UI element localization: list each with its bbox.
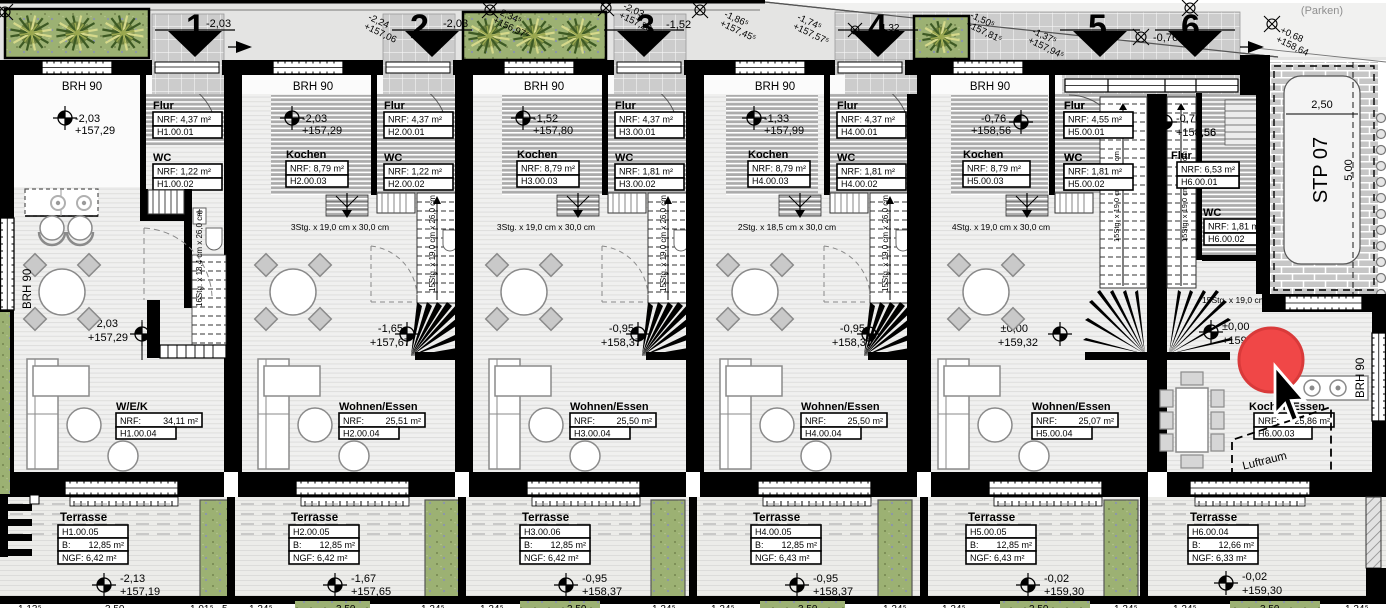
svg-text:15Stg. x 19,0 cm x 26,0 cm: 15Stg. x 19,0 cm x 26,0 cm (428, 195, 437, 292)
svg-text:1,01⁵: 1,01⁵ (190, 604, 214, 608)
svg-text:12,85 m²: 12,85 m² (319, 540, 355, 550)
svg-text:3,50: 3,50 (1029, 604, 1049, 608)
svg-text:(Parken): (Parken) (1301, 5, 1343, 17)
svg-text:NGF: 6,42 m²: NGF: 6,42 m² (524, 553, 579, 563)
svg-text:B:: B: (62, 540, 71, 550)
svg-text:H4.00.02: H4.00.02 (841, 179, 878, 189)
svg-text:NRF: 8,79 m²: NRF: 8,79 m² (752, 164, 806, 174)
svg-text:-1,67: -1,67 (351, 573, 376, 585)
svg-text:Terrasse: Terrasse (291, 512, 338, 524)
svg-text:Wohnen/Essen: Wohnen/Essen (801, 401, 880, 413)
svg-text:NRF: 1,81 m²: NRF: 1,81 m² (841, 167, 895, 177)
svg-text:Kochen: Kochen (517, 149, 558, 161)
svg-text:NRF: 8,79 m²: NRF: 8,79 m² (290, 164, 344, 174)
svg-text:1,24⁵: 1,24⁵ (1114, 604, 1138, 608)
svg-text:H6.00.01: H6.00.01 (1181, 177, 1218, 187)
svg-text:25,50 m²: 25,50 m² (847, 416, 883, 426)
svg-text:-0,76: -0,76 (1153, 32, 1178, 44)
svg-text:12,85 m²: 12,85 m² (88, 540, 124, 550)
svg-text:NRF: 1,22 m²: NRF: 1,22 m² (157, 167, 211, 177)
svg-text:NRF: 6,53 m²: NRF: 6,53 m² (1181, 165, 1235, 175)
svg-text:Flur: Flur (1064, 100, 1085, 112)
svg-text:NRF: 8,79 m²: NRF: 8,79 m² (967, 164, 1021, 174)
svg-text:Kochen: Kochen (748, 149, 789, 161)
svg-text:4Stg. x 19,0 cm x 30,0 cm: 4Stg. x 19,0 cm x 30,0 cm (952, 222, 1050, 232)
svg-text:B:: B: (524, 540, 533, 550)
svg-text:-2,03: -2,03 (206, 18, 231, 30)
svg-text:Kochen: Kochen (963, 149, 1004, 161)
svg-text:-0,95: -0,95 (813, 573, 838, 585)
svg-text:NRF: 4,37 m²: NRF: 4,37 m² (619, 115, 673, 125)
svg-text:+157,29: +157,29 (88, 332, 128, 344)
svg-text:NGF: 6,43 m²: NGF: 6,43 m² (970, 553, 1025, 563)
svg-text:12,85 m²: 12,85 m² (781, 540, 817, 550)
svg-text:-2,03: -2,03 (75, 113, 100, 125)
svg-text:Terrasse: Terrasse (522, 512, 569, 524)
svg-text:+158,37: +158,37 (832, 337, 872, 349)
svg-text:NRF: 4,37 m²: NRF: 4,37 m² (157, 115, 211, 125)
svg-text:Flur: Flur (837, 100, 858, 112)
svg-text:4,32: 4,32 (880, 23, 900, 34)
svg-text:12,85 m²: 12,85 m² (550, 540, 586, 550)
svg-text:1,24⁵: 1,24⁵ (421, 604, 445, 608)
svg-text:NGF: 6,42 m²: NGF: 6,42 m² (62, 553, 117, 563)
svg-text:-0,95: -0,95 (582, 573, 607, 585)
svg-text:-0,95: -0,95 (840, 323, 865, 335)
svg-text:B:: B: (970, 540, 979, 550)
svg-text:-0,76: -0,76 (981, 113, 1006, 125)
svg-text:Flur: Flur (615, 100, 636, 112)
svg-text:1,24⁵: 1,24⁵ (1173, 604, 1197, 608)
svg-text:BRH 90: BRH 90 (22, 269, 34, 309)
svg-text:H5.00.01: H5.00.01 (1068, 127, 1105, 137)
svg-text:H2.00.03: H2.00.03 (290, 176, 327, 186)
svg-text:15Stg. x 19,0 cm x 26,0 cm: 15Stg. x 19,0 cm x 26,0 cm (659, 195, 668, 292)
svg-text:+158,56: +158,56 (1176, 127, 1216, 139)
svg-text:B:: B: (293, 540, 302, 550)
svg-text:H3.00.03: H3.00.03 (521, 176, 558, 186)
svg-text:H3.00.06: H3.00.06 (524, 527, 561, 537)
svg-text:1,24⁵: 1,24⁵ (249, 604, 273, 608)
svg-text:Terrasse: Terrasse (1190, 512, 1237, 524)
svg-text:H2.00.05: H2.00.05 (293, 527, 330, 537)
svg-text:Wohnen/Essen: Wohnen/Essen (1032, 401, 1111, 413)
svg-text:H4.00.04: H4.00.04 (805, 429, 842, 439)
svg-text:H5.00.03: H5.00.03 (967, 176, 1004, 186)
svg-text:B:: B: (755, 540, 764, 550)
svg-text:H3.00.04: H3.00.04 (574, 429, 611, 439)
svg-text:-1,65: -1,65 (378, 323, 403, 335)
svg-text:NRF:: NRF: (1036, 416, 1057, 426)
svg-text:+157,29: +157,29 (75, 125, 115, 137)
svg-text:NRF: 4,37 m²: NRF: 4,37 m² (388, 115, 442, 125)
svg-text:BRH 90: BRH 90 (1355, 358, 1367, 398)
svg-text:15Stg. x 19,0 cm x 26,0 cm: 15Stg. x 19,0 cm x 26,0 cm (881, 195, 890, 292)
svg-text:H5.00.02: H5.00.02 (1068, 179, 1105, 189)
svg-text:NRF: 1,22 m²: NRF: 1,22 m² (388, 167, 442, 177)
svg-text:+157,29: +157,29 (302, 125, 342, 137)
svg-text:Flur: Flur (153, 100, 174, 112)
svg-text:Flur: Flur (384, 100, 405, 112)
svg-text:3Stg. x 19,0 cm x 30,0 cm: 3Stg. x 19,0 cm x 30,0 cm (291, 222, 389, 232)
svg-text:-2,03: -2,03 (443, 18, 468, 30)
svg-text:BRH 90: BRH 90 (524, 81, 564, 93)
svg-text:NRF:: NRF: (805, 416, 826, 426)
svg-text:WC: WC (384, 152, 402, 164)
svg-text:-0,95: -0,95 (609, 323, 634, 335)
svg-text:STP 07: STP 07 (1310, 137, 1332, 203)
svg-text:H6.00.04: H6.00.04 (1192, 527, 1229, 537)
svg-text:3,50: 3,50 (105, 604, 125, 608)
svg-text:1,24⁵: 1,24⁵ (652, 604, 676, 608)
svg-text:+159,30: +159,30 (1242, 585, 1282, 597)
svg-text:2,50: 2,50 (1311, 99, 1332, 111)
svg-text:WC: WC (1064, 152, 1082, 164)
svg-text:Terrasse: Terrasse (753, 512, 800, 524)
svg-text:+158,37: +158,37 (601, 337, 641, 349)
svg-text:34,11 m²: 34,11 m² (163, 416, 198, 426)
svg-text:3,50: 3,50 (567, 604, 587, 608)
svg-text:-0,76: -0,76 (1176, 113, 1201, 125)
svg-text:3,50: 3,50 (1260, 604, 1280, 608)
svg-text:3,50: 3,50 (798, 604, 818, 608)
svg-text:H4.00.05: H4.00.05 (755, 527, 792, 537)
svg-text:12,85 m²: 12,85 m² (996, 540, 1032, 550)
svg-text:H1.00.01: H1.00.01 (157, 127, 194, 137)
svg-text:NRF:: NRF: (574, 416, 595, 426)
svg-text:H4.00.01: H4.00.01 (841, 127, 878, 137)
svg-text:NRF:: NRF: (343, 416, 364, 426)
svg-text:NGF: 6,42 m²: NGF: 6,42 m² (293, 553, 348, 563)
svg-text:25,50 m²: 25,50 m² (616, 416, 652, 426)
svg-text:±0,00: ±0,00 (1222, 321, 1249, 333)
svg-text:Wohnen/Essen: Wohnen/Essen (339, 401, 418, 413)
svg-text:-2,03: -2,03 (302, 113, 327, 125)
svg-text:H1.00.05: H1.00.05 (62, 527, 99, 537)
svg-text:NRF: 1,81 m²: NRF: 1,81 m² (1208, 222, 1262, 232)
svg-text:NGF: 6,33 m²: NGF: 6,33 m² (1192, 553, 1247, 563)
svg-text:12,66 m²: 12,66 m² (1218, 540, 1254, 550)
svg-text:BRH 90: BRH 90 (755, 81, 795, 93)
svg-text:-0,02: -0,02 (1242, 571, 1267, 583)
svg-text:H2.00.02: H2.00.02 (388, 179, 425, 189)
svg-text:5: 5 (222, 604, 228, 608)
svg-text:1,24⁵: 1,24⁵ (883, 604, 907, 608)
svg-text:WC: WC (1203, 207, 1221, 219)
svg-text:2Stg. x 18,5 cm x 30,0 cm: 2Stg. x 18,5 cm x 30,0 cm (738, 222, 836, 232)
svg-text:H2.00.01: H2.00.01 (388, 127, 425, 137)
svg-text:H3.00.02: H3.00.02 (619, 179, 656, 189)
svg-text:+157,99: +157,99 (764, 125, 804, 137)
svg-text:-1,52: -1,52 (666, 19, 691, 31)
svg-text:H5.00.05: H5.00.05 (970, 527, 1007, 537)
svg-text:Kochen: Kochen (286, 149, 327, 161)
svg-text:NRF: 8,79 m²: NRF: 8,79 m² (521, 164, 575, 174)
svg-text:H4.00.03: H4.00.03 (752, 176, 789, 186)
svg-text:H6.00.02: H6.00.02 (1208, 234, 1245, 244)
svg-text:Terrasse: Terrasse (60, 512, 107, 524)
svg-text:+157,80: +157,80 (533, 125, 573, 137)
svg-text:-2,13: -2,13 (120, 573, 145, 585)
svg-text:1,24⁵: 1,24⁵ (480, 604, 504, 608)
svg-text:1,24⁵: 1,24⁵ (1345, 604, 1369, 608)
svg-text:BRH 90: BRH 90 (293, 81, 333, 93)
svg-text:3Stg. x 19,0 cm x 30,0 cm: 3Stg. x 19,0 cm x 30,0 cm (497, 222, 595, 232)
svg-text:-1,33: -1,33 (764, 113, 789, 125)
svg-text:NRF: 1,81 m²: NRF: 1,81 m² (1068, 167, 1122, 177)
svg-text:25,51 m²: 25,51 m² (385, 416, 421, 426)
svg-text:BRH 90: BRH 90 (62, 81, 102, 93)
svg-text:+159,32: +159,32 (998, 337, 1038, 349)
svg-text:H2.00.04: H2.00.04 (343, 429, 380, 439)
svg-text:+157,67: +157,67 (370, 337, 410, 349)
svg-text:Flur: Flur (1171, 150, 1192, 162)
svg-text:BRH 90: BRH 90 (970, 81, 1010, 93)
svg-text:NRF:: NRF: (120, 416, 141, 426)
svg-text:NRF: 4,37 m²: NRF: 4,37 m² (841, 115, 895, 125)
svg-text:Wohnen/Essen: Wohnen/Essen (570, 401, 649, 413)
svg-text:NRF: 4,55 m²: NRF: 4,55 m² (1068, 115, 1122, 125)
svg-text:NRF: 1,81 m²: NRF: 1,81 m² (619, 167, 673, 177)
svg-text:B:: B: (1192, 540, 1201, 550)
svg-text:W/E/K: W/E/K (116, 401, 148, 413)
svg-text:WC: WC (615, 152, 633, 164)
svg-text:-1,52: -1,52 (533, 113, 558, 125)
svg-text:1,24⁵: 1,24⁵ (711, 604, 735, 608)
svg-text:1,13⁵: 1,13⁵ (18, 604, 42, 608)
svg-text:+158,56: +158,56 (971, 125, 1011, 137)
svg-text:NGF: 6,43 m²: NGF: 6,43 m² (755, 553, 810, 563)
svg-text:WC: WC (837, 152, 855, 164)
svg-text:H1.00.04: H1.00.04 (120, 429, 157, 439)
svg-text:H1.00.02: H1.00.02 (157, 179, 194, 189)
svg-text:H3.00.01: H3.00.01 (619, 127, 656, 137)
svg-text:3,50: 3,50 (336, 604, 356, 608)
svg-text:-0,02: -0,02 (1044, 573, 1069, 585)
svg-text:WC: WC (153, 152, 171, 164)
svg-text:25,07 m²: 25,07 m² (1078, 416, 1114, 426)
svg-text:Terrasse: Terrasse (968, 512, 1015, 524)
svg-text:1,24⁵: 1,24⁵ (942, 604, 966, 608)
svg-text:H5.00.04: H5.00.04 (1036, 429, 1073, 439)
